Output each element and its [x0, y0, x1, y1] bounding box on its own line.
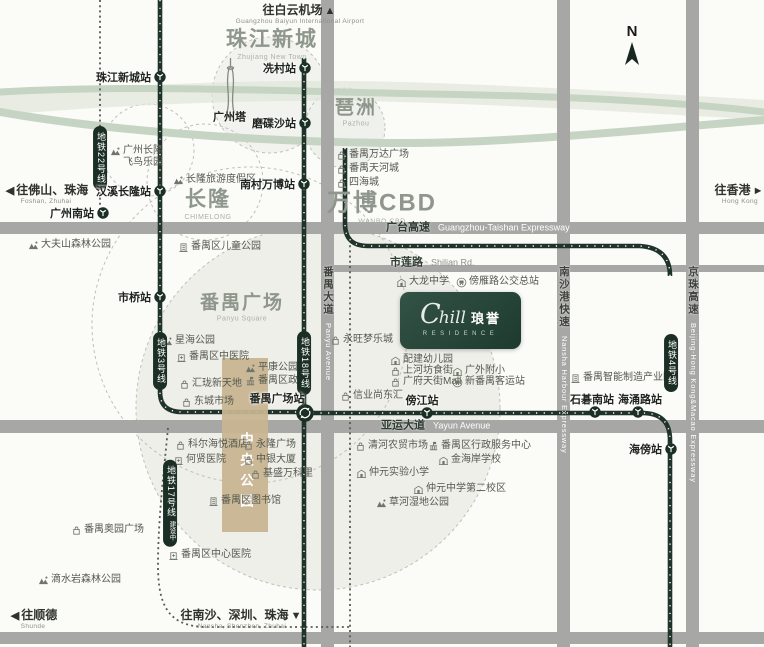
shop-icon	[71, 525, 82, 536]
park-icon	[28, 240, 39, 251]
metro-line-badge: 地铁22号线	[93, 126, 107, 190]
shop-icon	[355, 441, 366, 452]
road-label-vertical: 京珠高速Beijing-Hong Kong&Macao Expressway	[685, 266, 701, 483]
shop-icon	[340, 391, 351, 402]
location-map: 中央公园 C hill 琅誉 RESIDENCE N 番禺万达广场番禺天河城四海…	[0, 0, 764, 647]
direction-arrow-icon: ◀	[9, 610, 21, 622]
metro-station-icon	[154, 71, 166, 83]
poi-label: 信业尚东汇	[340, 390, 403, 402]
park-icon	[245, 363, 256, 374]
district-label: 万博CBDWANBO CBD	[327, 183, 437, 226]
metro-line-badge: 地铁17号线建设中	[163, 460, 177, 547]
direction-marker: ◀往佛山、珠海Foshan, Zhuhai	[4, 181, 88, 205]
metro-station-icon	[298, 178, 310, 190]
station-label: 南村万博站	[240, 176, 295, 192]
road-label-vertical: 番禺大道Panyu Avenue	[320, 266, 336, 381]
metro-line-badge: 地铁4号线	[664, 334, 678, 392]
station-label: 汉溪长隆站	[96, 183, 151, 199]
district-label: 长隆CHIMELONG	[185, 183, 232, 221]
poi-label: 广州长隆飞鸟乐园	[110, 145, 163, 169]
metro-line-badge: 地铁18号线	[297, 331, 311, 395]
poi-label: 仲元中学第二校区	[413, 483, 506, 495]
road-label: 亚运大道Yayun Avenue	[381, 421, 490, 432]
metro-station-icon	[632, 406, 644, 418]
poi-label: 大夫山森林公园	[28, 239, 111, 251]
shop-icon	[243, 440, 254, 451]
building-icon	[178, 242, 189, 253]
park-icon	[173, 175, 184, 186]
road-label-vertical: 南沙港快速Nansha Harbour Expressway	[556, 266, 572, 453]
poi-label: 科尔海悦酒店	[175, 439, 248, 451]
station-label: 市桥站	[118, 289, 151, 305]
station-label: 珠江新城站	[96, 69, 151, 85]
direction-marker: 往白云机场▲Guangzhou Baiyun International Air…	[236, 1, 365, 25]
station-label: 磨碟沙站	[252, 115, 296, 131]
shop-icon	[243, 455, 254, 466]
station-label: 广州南站	[50, 205, 94, 221]
poi-label: 大龙中学	[396, 276, 449, 288]
metro-station-icon	[154, 291, 166, 303]
metro-station-icon	[421, 407, 433, 419]
school-icon	[356, 468, 367, 479]
poi-label: 番禺区中医院	[176, 351, 249, 363]
poi-label: 汇珑新天地	[179, 378, 242, 390]
metro-station-icon	[154, 185, 166, 197]
poi-label: 基盛万科里	[250, 468, 313, 480]
poi-label: 永旺梦乐城	[330, 334, 393, 346]
poi-label: 滴水岩森林公园	[38, 574, 121, 586]
park-icon	[110, 146, 121, 157]
poi-label: 清河农贸市场	[355, 440, 428, 452]
school-icon	[438, 455, 449, 466]
metro-station-icon	[299, 62, 311, 74]
station-label: 海傍站	[629, 441, 662, 457]
district-label: 琶洲Pazhou	[335, 93, 377, 128]
shop-icon	[175, 440, 186, 451]
poi-label: 广州塔	[213, 111, 246, 124]
poi-label: 草河湿地公园	[376, 497, 449, 509]
park-icon	[38, 575, 49, 586]
direction-arrow-icon: ▼	[289, 610, 304, 622]
district-label: 珠江新城Zhujiang New Town	[226, 23, 318, 61]
poi-label: 平康公园	[245, 362, 298, 374]
metro-station-icon	[665, 443, 677, 455]
poi-label: 中银大厦	[243, 454, 296, 466]
station-label: 石碁南站	[570, 391, 614, 407]
poi-label: 番禺奥园广场	[71, 524, 144, 536]
shop-icon	[250, 469, 261, 480]
poi-label: 星海公园	[162, 335, 215, 347]
poi-label: 番禺万达广场	[336, 149, 409, 161]
hospital-icon	[176, 352, 187, 363]
map-labels-layer: 番禺万达广场番禺天河城四海城广州长隆飞鸟乐园长隆旅游度假区大夫山森林公园番禺区儿…	[0, 0, 764, 647]
direction-arrow-icon: ►	[751, 185, 764, 197]
metro-station-icon	[589, 406, 601, 418]
poi-label: 番禺天河城	[336, 163, 399, 175]
poi-label: 金海岸学校	[438, 454, 501, 466]
metro-station-icon	[299, 117, 311, 129]
road-label: 市莲路Shilian Rd.	[390, 258, 475, 269]
shop-icon	[390, 377, 401, 388]
road-label: 广台高速Guangzhou-Taishan Expressway	[386, 223, 570, 234]
poi-label: 番禺区行政服务中心	[428, 440, 531, 452]
school-icon	[396, 277, 407, 288]
direction-arrow-icon: ◀	[4, 185, 16, 197]
metro-station-icon	[97, 207, 109, 219]
direction-marker: ◀往顺德Shunde	[9, 606, 57, 630]
bus-icon	[452, 377, 463, 388]
shop-icon	[179, 379, 190, 390]
metro-interchange-icon	[296, 404, 314, 422]
poi-label: 番禺智能制造产业园	[570, 372, 673, 384]
shop-icon	[336, 150, 347, 161]
poi-label: 广府天街Mall	[390, 376, 461, 388]
station-label: 海涌路站	[618, 391, 662, 407]
metro-line-badge: 地铁3号线	[153, 332, 167, 390]
direction-arrow-icon: ▲	[323, 5, 338, 17]
poi-label: 番禺区儿童公园	[178, 241, 261, 253]
gov-icon	[428, 441, 439, 452]
poi-label: 东城市场	[181, 396, 234, 408]
poi-label: 傍雁路公交总站	[456, 276, 539, 288]
poi-label: 永隆广场	[243, 439, 296, 451]
shop-icon	[181, 397, 192, 408]
park-icon	[376, 498, 387, 509]
station-label: 番禺广场站	[250, 390, 305, 406]
gov-icon	[245, 376, 256, 387]
station-label: 傍江站	[406, 392, 439, 408]
station-label: 冼村站	[263, 60, 296, 76]
direction-marker: 往香港►Hong Kong	[715, 181, 764, 205]
poi-label: 新番禺客运站	[452, 376, 525, 388]
hospital-icon	[168, 550, 179, 561]
district-label: 番禺广场Panyu Square	[200, 288, 284, 323]
poi-label: 何贤医院	[173, 454, 226, 466]
poi-label: 仲元实验小学	[356, 467, 429, 479]
poi-label: 番禺区中心医院	[168, 549, 251, 561]
shop-icon	[336, 164, 347, 175]
school-icon	[413, 484, 424, 495]
poi-label: 番禺区图书馆	[208, 495, 281, 507]
building-icon	[208, 496, 219, 507]
bus-icon	[456, 277, 467, 288]
direction-marker: 往南沙、深圳、珠海▼Nansha, Shenzhen, Zhuhai	[181, 606, 304, 630]
